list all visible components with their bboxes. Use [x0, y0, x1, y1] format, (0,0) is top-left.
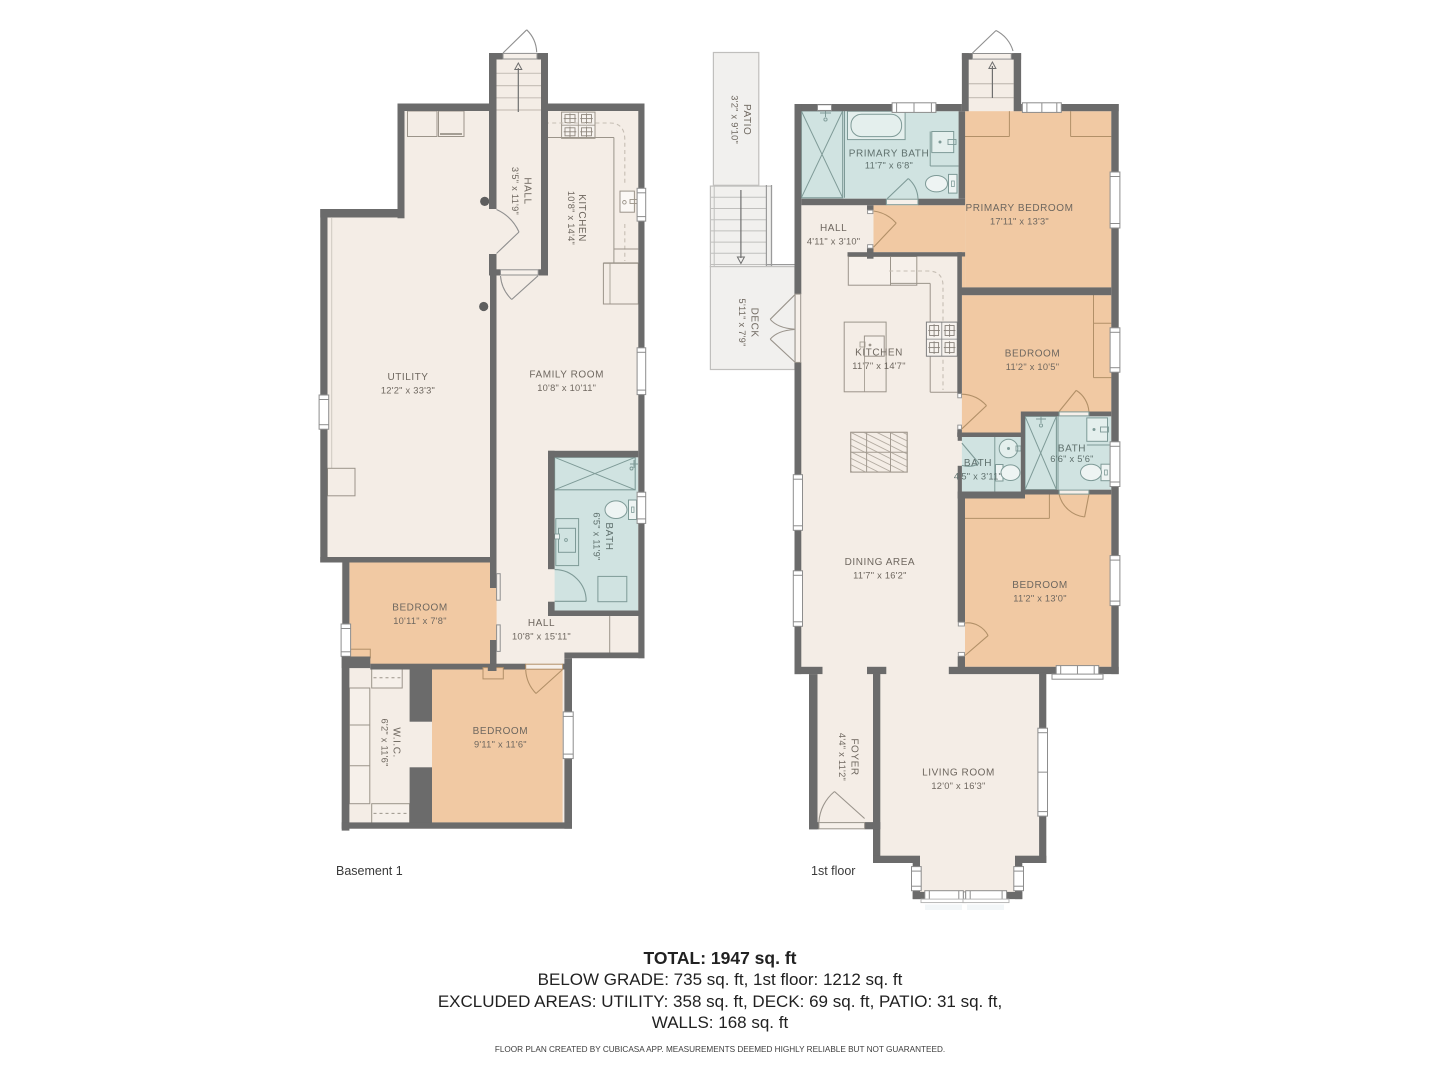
svg-text:PRIMARY BATH: PRIMARY BATH: [849, 149, 930, 160]
svg-text:HALL: HALL: [820, 223, 847, 234]
svg-text:12'2" x 33'3": 12'2" x 33'3": [381, 386, 435, 396]
svg-text:BEDROOM: BEDROOM: [1005, 348, 1061, 359]
svg-text:12'0" x 16'3": 12'0" x 16'3": [931, 781, 985, 791]
svg-text:KITCHEN: KITCHEN: [855, 348, 903, 359]
svg-text:11'7" x 16'2": 11'7" x 16'2": [853, 571, 907, 581]
svg-text:DINING AREA: DINING AREA: [845, 557, 916, 568]
svg-text:BATH: BATH: [1058, 443, 1086, 454]
svg-text:DECK: DECK: [749, 308, 760, 338]
svg-text:LIVING ROOM: LIVING ROOM: [922, 767, 995, 778]
svg-text:BEDROOM: BEDROOM: [392, 603, 448, 614]
svg-text:10'8" x 14'4": 10'8" x 14'4": [566, 191, 576, 245]
svg-text:4'5" x 3'11": 4'5" x 3'11": [954, 472, 1002, 482]
svg-text:4'11" x 3'10": 4'11" x 3'10": [807, 237, 861, 247]
svg-text:UTILITY: UTILITY: [387, 372, 428, 383]
svg-text:4'4" x 11'2": 4'4" x 11'2": [837, 733, 847, 781]
svg-text:11'2" x 10'5": 11'2" x 10'5": [1006, 362, 1060, 372]
svg-text:6'2" x 11'6": 6'2" x 11'6": [379, 719, 389, 767]
svg-text:BEDROOM: BEDROOM: [473, 726, 529, 737]
svg-text:3'2" x 9'10": 3'2" x 9'10": [730, 95, 740, 144]
svg-text:W.I.C.: W.I.C.: [390, 727, 401, 758]
svg-text:11'7" x 14'7": 11'7" x 14'7": [852, 361, 906, 371]
svg-text:HALL: HALL: [521, 177, 532, 204]
svg-text:11'2" x 13'0": 11'2" x 13'0": [1013, 594, 1067, 604]
svg-text:17'11" x 13'3": 17'11" x 13'3": [990, 217, 1049, 227]
svg-text:10'11" x 7'8": 10'11" x 7'8": [393, 616, 447, 626]
svg-text:3'5" x 11'9": 3'5" x 11'9": [510, 167, 520, 215]
svg-text:KITCHEN: KITCHEN: [576, 194, 587, 242]
svg-text:PRIMARY BEDROOM: PRIMARY BEDROOM: [966, 203, 1074, 214]
svg-text:10'8" x 15'11": 10'8" x 15'11": [512, 631, 571, 641]
svg-text:6'5" x 11'9": 6'5" x 11'9": [591, 512, 601, 560]
svg-text:BEDROOM: BEDROOM: [1012, 580, 1068, 591]
svg-text:6'6" x 5'6": 6'6" x 5'6": [1050, 454, 1093, 464]
svg-text:BATH: BATH: [603, 522, 614, 550]
svg-text:FOYER: FOYER: [848, 738, 859, 775]
svg-text:HALL: HALL: [528, 618, 555, 629]
svg-text:11'7" x 6'8": 11'7" x 6'8": [865, 161, 913, 171]
svg-text:10'8" x 10'11": 10'8" x 10'11": [537, 383, 596, 393]
svg-text:FAMILY ROOM: FAMILY ROOM: [529, 369, 604, 380]
svg-text:5'11" x 7'9": 5'11" x 7'9": [737, 299, 747, 347]
svg-text:9'11" x 11'6": 9'11" x 11'6": [474, 740, 527, 750]
svg-text:BATH: BATH: [964, 458, 992, 469]
svg-text:PATIO: PATIO: [741, 104, 752, 135]
